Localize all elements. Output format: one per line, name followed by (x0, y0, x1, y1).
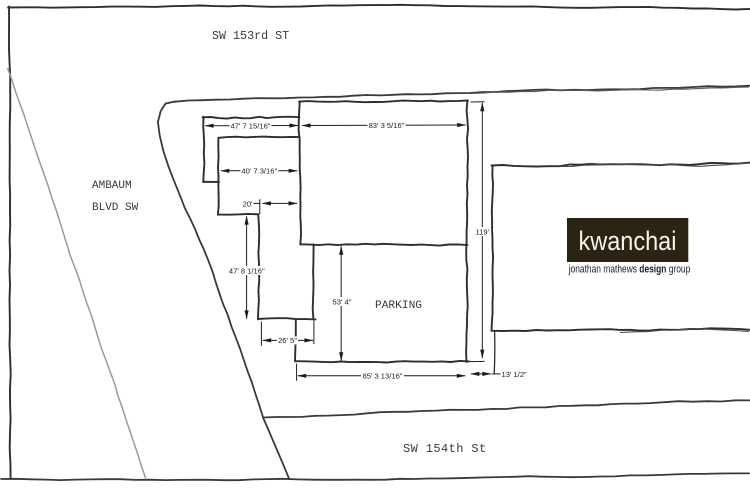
svg-text:20': 20' (243, 199, 253, 208)
svg-text:jonathan mathews design group: jonathan mathews design group (568, 264, 690, 276)
svg-text:PARKING: PARKING (375, 300, 422, 312)
svg-text:47' 7 15/16": 47' 7 15/16" (230, 121, 270, 130)
svg-text:119': 119' (476, 227, 490, 236)
svg-text:SW 154th St: SW 154th St (403, 442, 487, 456)
svg-text:47' 8 1/16": 47' 8 1/16" (229, 266, 265, 275)
svg-text:BLVD SW: BLVD SW (92, 202, 139, 214)
svg-text:40' 7 3/16": 40' 7 3/16" (241, 167, 277, 176)
svg-text:13' 1/2": 13' 1/2" (502, 370, 528, 379)
svg-text:53' 4": 53' 4" (333, 297, 352, 306)
svg-text:83' 3 5/16": 83' 3 5/16" (369, 121, 405, 130)
svg-text:AMBAUM: AMBAUM (92, 180, 132, 192)
svg-text:85' 3 13/16": 85' 3 13/16" (362, 372, 402, 381)
svg-text:26' 5": 26' 5" (278, 336, 297, 345)
svg-text:SW 153rd ST: SW 153rd ST (212, 29, 289, 43)
svg-text:kwanchai: kwanchai (579, 227, 677, 257)
